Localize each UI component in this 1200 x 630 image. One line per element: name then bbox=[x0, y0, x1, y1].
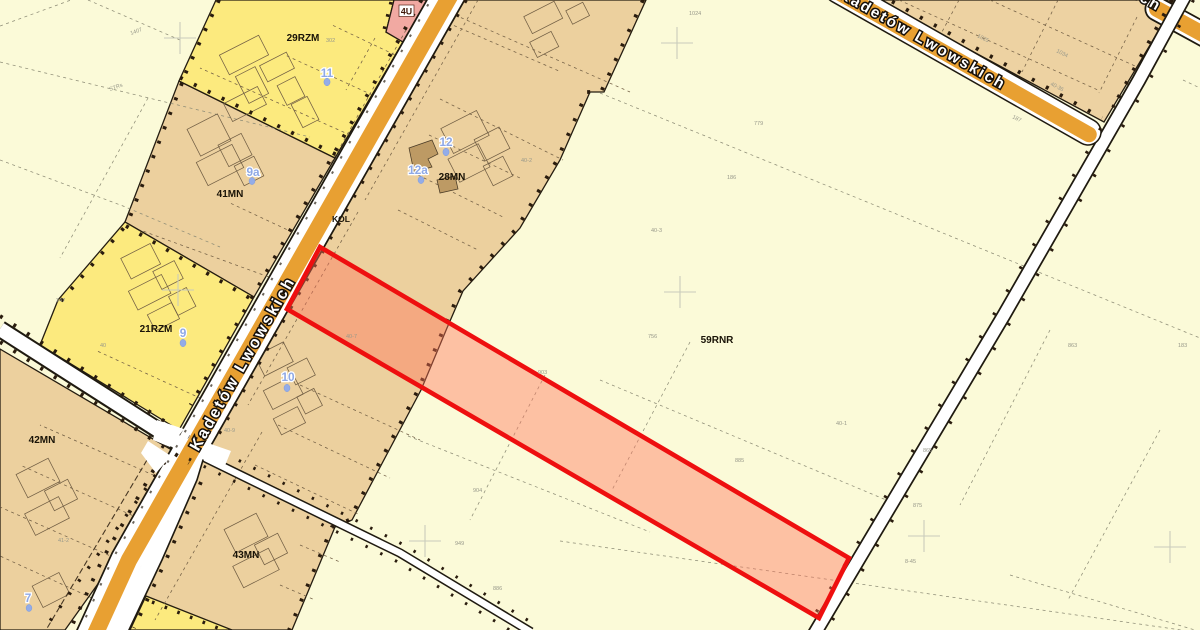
svg-text:8-45: 8-45 bbox=[905, 559, 916, 565]
svg-text:11: 11 bbox=[321, 66, 334, 80]
svg-text:903: 903 bbox=[538, 370, 547, 376]
svg-text:10: 10 bbox=[281, 370, 295, 384]
svg-text:886: 886 bbox=[493, 586, 502, 592]
svg-text:9a: 9a bbox=[246, 165, 260, 179]
svg-text:KOL: KOL bbox=[332, 214, 350, 224]
svg-text:302: 302 bbox=[326, 38, 335, 44]
svg-text:247: 247 bbox=[56, 298, 65, 304]
svg-text:9: 9 bbox=[180, 326, 187, 340]
svg-text:12a: 12a bbox=[408, 163, 428, 177]
svg-text:885: 885 bbox=[735, 458, 744, 464]
svg-text:43MN: 43MN bbox=[233, 550, 260, 561]
svg-text:40-1: 40-1 bbox=[836, 421, 847, 427]
svg-text:183: 183 bbox=[1178, 343, 1187, 349]
svg-text:949: 949 bbox=[455, 541, 464, 547]
svg-text:865: 865 bbox=[923, 448, 932, 454]
svg-text:41MN: 41MN bbox=[217, 189, 244, 200]
svg-text:779: 779 bbox=[754, 121, 763, 127]
svg-text:863: 863 bbox=[1068, 343, 1077, 349]
svg-text:186: 186 bbox=[727, 175, 736, 181]
svg-text:59RNR: 59RNR bbox=[701, 335, 735, 346]
svg-text:40-9: 40-9 bbox=[224, 428, 235, 434]
svg-text:1024: 1024 bbox=[689, 11, 701, 17]
svg-text:42MN: 42MN bbox=[29, 435, 56, 446]
svg-text:756: 756 bbox=[648, 334, 657, 340]
svg-text:40-3: 40-3 bbox=[651, 228, 662, 234]
svg-text:29RZM: 29RZM bbox=[287, 33, 320, 44]
svg-text:28MN: 28MN bbox=[439, 172, 466, 183]
svg-text:40-7: 40-7 bbox=[346, 334, 357, 340]
svg-text:41-2: 41-2 bbox=[58, 538, 69, 544]
svg-text:40-2: 40-2 bbox=[521, 158, 532, 164]
svg-text:4U: 4U bbox=[401, 7, 412, 17]
svg-text:875: 875 bbox=[913, 503, 922, 509]
svg-text:12: 12 bbox=[439, 135, 453, 149]
svg-text:7: 7 bbox=[25, 591, 32, 605]
svg-text:21RZM: 21RZM bbox=[140, 324, 173, 335]
svg-text:40: 40 bbox=[100, 343, 106, 349]
svg-text:904: 904 bbox=[473, 488, 482, 494]
